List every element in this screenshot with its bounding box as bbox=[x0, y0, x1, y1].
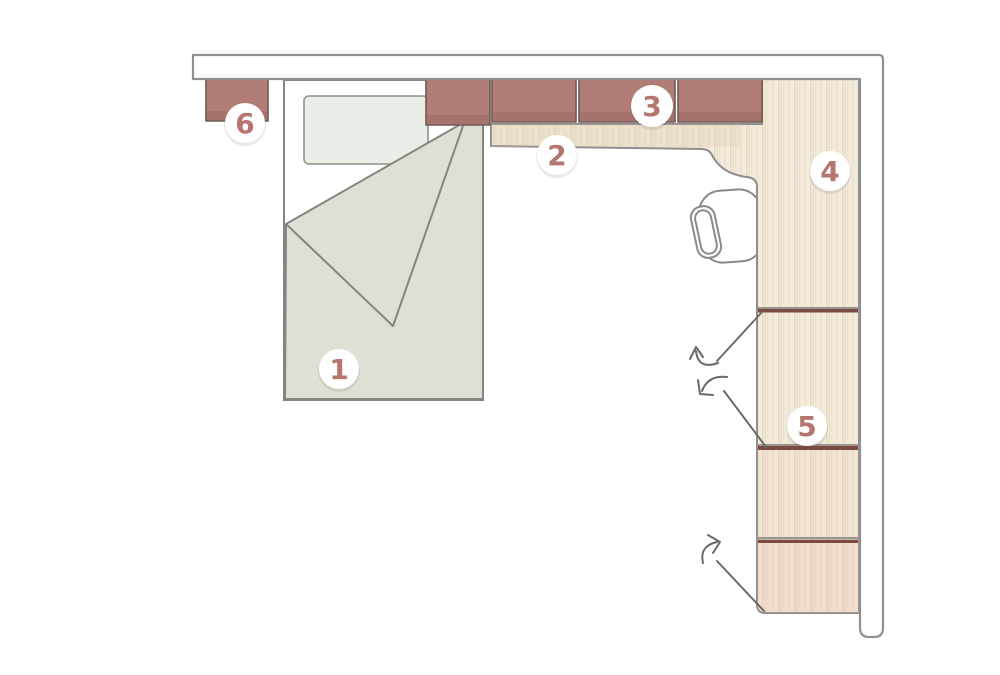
wardrobe-divider bbox=[758, 537, 858, 543]
desk-chair bbox=[689, 188, 765, 264]
wall-cabinet bbox=[678, 78, 762, 122]
wardrobe-bottom-tint bbox=[757, 541, 859, 613]
badge-4-label: 4 bbox=[820, 155, 839, 188]
badge-2: 2 bbox=[536, 135, 578, 178]
door-swing-arrow-middle bbox=[698, 377, 766, 447]
floor-plan: 1 2 3 4 5 6 bbox=[40, 16, 1000, 659]
badge-3: 3 bbox=[630, 85, 674, 130]
badge-6-label: 6 bbox=[235, 107, 254, 140]
wall-cabinet bbox=[492, 78, 576, 122]
bed bbox=[284, 80, 483, 400]
badge-2-label: 2 bbox=[547, 139, 566, 172]
wall-cabinet bbox=[426, 78, 490, 125]
badge-3-label: 3 bbox=[642, 90, 661, 123]
door-swing-arrow-top bbox=[690, 312, 762, 365]
badge-6: 6 bbox=[224, 103, 266, 146]
desk-top-tint bbox=[491, 124, 741, 147]
badge-5: 5 bbox=[786, 406, 828, 449]
badge-5-label: 5 bbox=[797, 410, 816, 443]
door-swing-arrow-bottom bbox=[702, 535, 764, 611]
badge-1: 1 bbox=[318, 349, 360, 392]
badge-4: 4 bbox=[809, 151, 851, 194]
badge-1-label: 1 bbox=[329, 353, 348, 386]
wardrobe-divider bbox=[758, 307, 858, 313]
